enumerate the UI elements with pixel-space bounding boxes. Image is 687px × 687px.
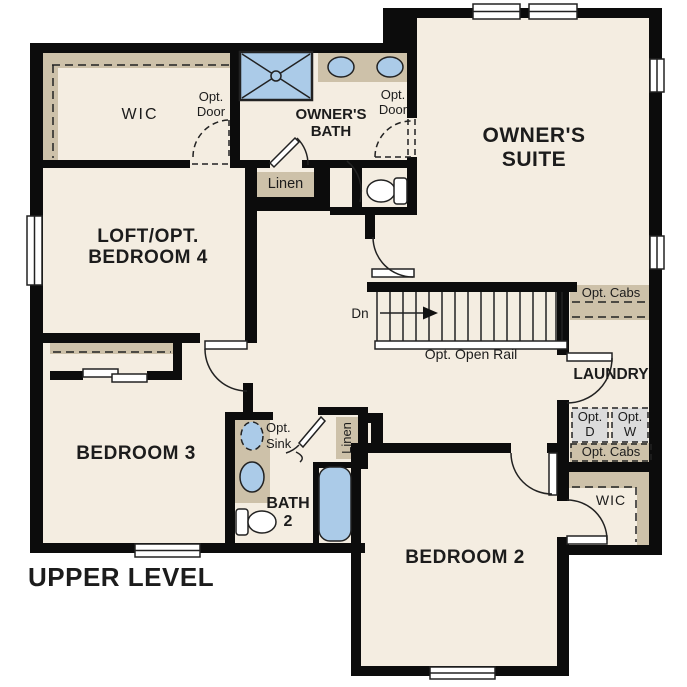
floor-plan: WIC Opt.Door OWNER'SBATH Opt.Door OWNER'… (0, 0, 687, 687)
bath2-toilet-tank (236, 509, 248, 535)
room-label-owners-suite: OWNER'SSUITE (473, 124, 595, 171)
toilet-room-door-swing (347, 161, 361, 202)
owners-bath-sink-icon (377, 57, 403, 77)
open-rail-label: Opt. Open Rail (418, 347, 524, 363)
stairs-down-arrow-head (423, 307, 438, 320)
opt-washer-label: Opt.W (612, 410, 648, 439)
room-label-bath2: BATH2 (260, 495, 316, 531)
owners-bath-linen-door-leaf (270, 138, 299, 167)
opt-door-suite-opening (408, 119, 415, 156)
room-label-loft: LOFT/OPT.BEDROOM 4 (63, 226, 233, 269)
bedroom2-door-swing (511, 453, 552, 494)
stairs-down-label: Dn (346, 306, 374, 321)
stair-treads (377, 292, 562, 341)
bedroom3-closet-bypass-door (112, 374, 147, 382)
opt-door-wic-swing (193, 120, 229, 157)
shower-drain (271, 71, 281, 81)
room-label-owners-bath: OWNER'SBATH (287, 107, 375, 141)
owners-bath-sink-icon (328, 57, 354, 77)
plan-title: UPPER LEVEL (28, 563, 248, 592)
opt-sink-pointer (296, 452, 302, 462)
opt-door-wic-label: Opt.Door (190, 90, 232, 119)
room-label-wic-owner: WIC (105, 106, 175, 124)
opt-dryer-label: Opt.D (572, 410, 608, 439)
wic-bedroom2-door-leaf (567, 536, 607, 544)
linen-bath2-label: Linen (336, 417, 358, 459)
bath2-door-leaf (299, 417, 325, 447)
room-label-wic-bedroom2: WIC (588, 493, 634, 509)
room-label-bedroom2: BEDROOM 2 (394, 547, 536, 568)
bedroom3-door-swing (205, 349, 247, 391)
laundry-door-leaf (567, 353, 612, 361)
opt-cabs-upper-dash (572, 302, 650, 317)
opt-door-suite-swing (375, 121, 411, 157)
bathtub-icon (319, 467, 351, 541)
opt-sink-label: Opt.Sink (266, 420, 302, 453)
linen-owners-bath-label: Linen (257, 172, 314, 197)
owners-toilet-icon (367, 180, 395, 202)
bedroom3-door-leaf (205, 341, 247, 349)
opt-door-suite-label: Opt.Door (372, 88, 414, 117)
stairs (372, 269, 567, 349)
opt-sink-basin (241, 422, 263, 450)
opt-cabs-upper-label: Opt. Cabs (572, 286, 650, 301)
stair-landing-rail (372, 269, 414, 277)
owners-toilet-tank (394, 178, 407, 204)
room-label-laundry: LAUNDRY (569, 366, 653, 383)
room-label-bedroom3: BEDROOM 3 (66, 443, 206, 464)
bath2-sink-icon (240, 462, 264, 492)
opt-cabs-lower-label: Opt. Cabs (571, 445, 651, 460)
bedroom2-door-leaf (549, 453, 557, 495)
